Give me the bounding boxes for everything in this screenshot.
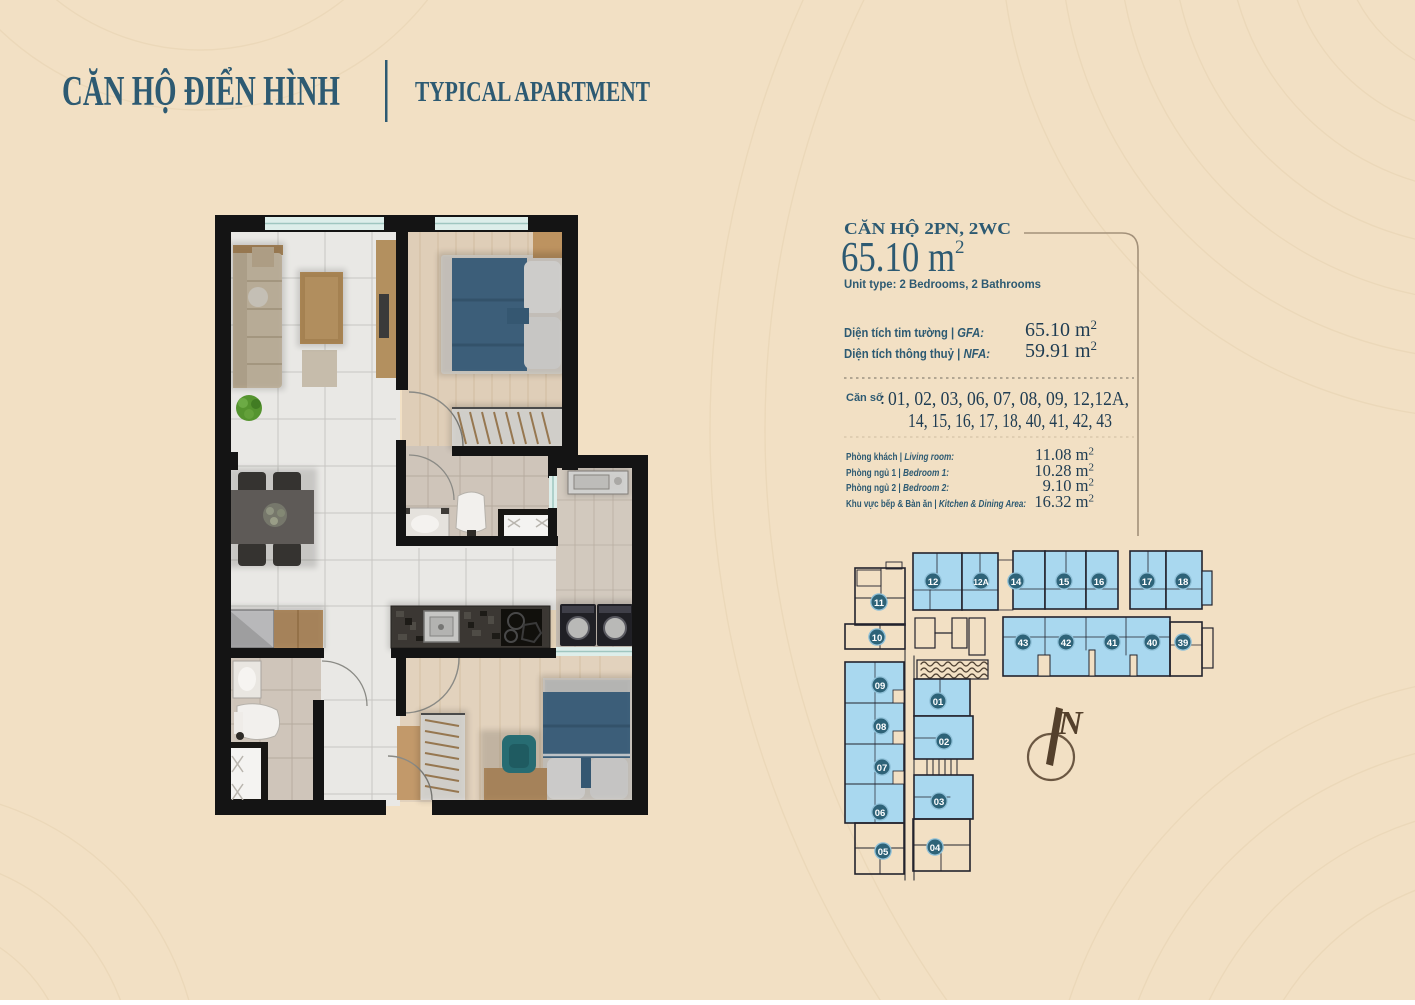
svg-text:01: 01: [933, 697, 944, 708]
svg-text:12: 12: [928, 577, 939, 588]
svg-text:01, 02, 03, 06, 07, 08, 09, 12: 01, 02, 03, 06, 07, 08, 09, 12,12A,: [888, 388, 1129, 410]
svg-text:41: 41: [1107, 638, 1118, 649]
svg-text:Diện tích tim tường | GFA:: Diện tích tim tường | GFA:: [844, 326, 984, 340]
svg-text:04: 04: [930, 843, 941, 854]
svg-text:65.10 m2: 65.10 m2: [1025, 317, 1097, 341]
svg-text:65.10 m: 65.10 m: [841, 235, 955, 281]
svg-text:12A: 12A: [973, 577, 989, 587]
svg-text:15: 15: [1059, 577, 1070, 588]
svg-text:06: 06: [875, 808, 886, 819]
svg-text:39: 39: [1178, 638, 1189, 649]
svg-text:Phòng khách | Living room:: Phòng khách | Living room:: [846, 451, 954, 463]
svg-text:TYPICAL APARTMENT: TYPICAL APARTMENT: [415, 77, 650, 108]
svg-text:03: 03: [934, 797, 945, 808]
svg-text:N: N: [1057, 705, 1084, 742]
svg-text:07: 07: [877, 763, 888, 774]
svg-text:14, 15, 16, 17, 18, 40, 41, 42: 14, 15, 16, 17, 18, 40, 41, 42, 43: [908, 410, 1112, 432]
svg-text::: :: [880, 388, 885, 408]
svg-text:Phòng ngủ 2 | Bedroom 2:: Phòng ngủ 2 | Bedroom 2:: [846, 482, 949, 494]
svg-text:40: 40: [1147, 638, 1158, 649]
svg-text:43: 43: [1018, 638, 1029, 649]
svg-text:17: 17: [1142, 577, 1153, 588]
svg-text:Unit type: 2 Bedrooms, 2 Bathr: Unit type: 2 Bedrooms, 2 Bathrooms: [844, 277, 1041, 291]
svg-text:16.32 m2: 16.32 m2: [1034, 492, 1094, 511]
svg-text:05: 05: [878, 847, 889, 858]
svg-text:09: 09: [875, 681, 886, 692]
svg-text:14: 14: [1011, 577, 1022, 588]
svg-text:02: 02: [939, 737, 950, 748]
svg-text:Khu vực bếp & Bàn ăn | Kitchen: Khu vực bếp & Bàn ăn | Kitchen & Dining …: [846, 498, 1026, 510]
svg-text:42: 42: [1061, 638, 1072, 649]
svg-text:Phòng ngủ 1 | Bedroom 1:: Phòng ngủ 1 | Bedroom 1:: [846, 467, 949, 479]
svg-text:2: 2: [955, 237, 965, 258]
svg-text:Căn số: Căn số: [846, 392, 883, 404]
svg-text:08: 08: [876, 722, 887, 733]
svg-text:CĂN HỘ ĐIỂN HÌNH: CĂN HỘ ĐIỂN HÌNH: [62, 66, 340, 115]
svg-text:11: 11: [874, 598, 885, 609]
svg-text:16: 16: [1094, 577, 1105, 588]
svg-text:10: 10: [872, 633, 883, 644]
svg-text:59.91 m2: 59.91 m2: [1025, 338, 1097, 362]
svg-text:Diện tích thông thuỷ | NFA:: Diện tích thông thuỷ | NFA:: [844, 347, 990, 361]
svg-text:18: 18: [1178, 577, 1189, 588]
